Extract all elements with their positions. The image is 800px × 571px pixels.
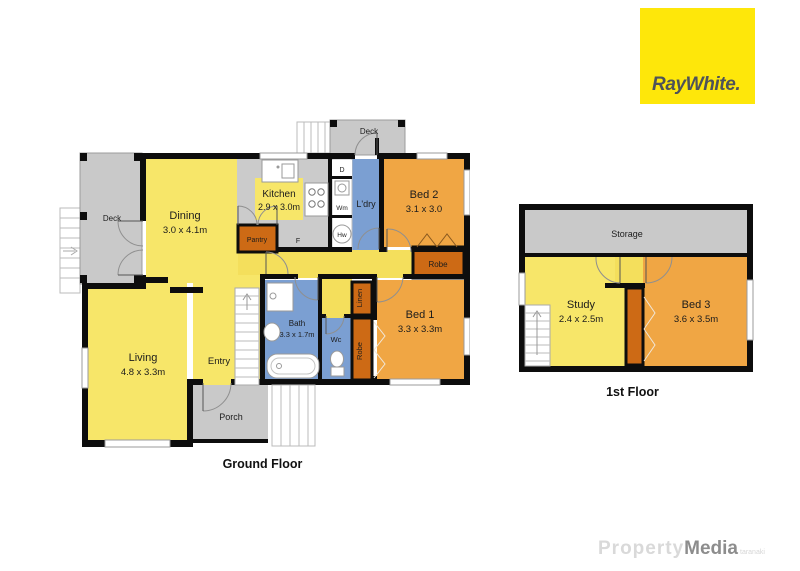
ground-floor-caption: Ground Floor <box>55 457 470 471</box>
living-dims: 4.8 x 3.3m <box>121 367 165 378</box>
robe-divider-closet <box>626 288 643 365</box>
bed1-label: Bed 1 <box>406 309 435 321</box>
bed2-label: Bed 2 <box>410 189 439 201</box>
floorplan-page: RayWhite. <box>0 0 800 571</box>
bed2-dims: 3.1 x 3.0 <box>406 204 442 215</box>
dining-label: Dining <box>169 210 200 222</box>
hall-pocket <box>322 278 352 318</box>
bed1-dims: 3.3 x 3.3m <box>398 324 442 335</box>
raywhite-logo-text: RayWhite. <box>652 74 740 96</box>
ground-floor-plan: Deck Deck Dining 3.0 x 4.1m Kitchen 2.9 … <box>55 108 470 453</box>
hot-water-label: Hw <box>337 232 347 239</box>
linen-label: Linen <box>355 289 364 307</box>
porch-label: Porch <box>219 412 243 422</box>
exterior-stairs-left-icon <box>60 208 80 293</box>
entry-label: Entry <box>208 356 230 367</box>
washing-machine-label: Wm <box>336 205 348 212</box>
pantry-label: Pantry <box>247 237 268 244</box>
shower-icon <box>267 283 293 311</box>
bed2-room <box>384 159 464 247</box>
exterior-steps-bottom-icon <box>272 385 315 446</box>
wc-label: Wc <box>331 335 342 344</box>
study-label: Study <box>567 299 596 311</box>
fridge-label: F <box>296 238 300 245</box>
kitchen-dims: 2.9 x 3.0m <box>258 202 300 212</box>
dishwasher-label: D <box>339 167 344 174</box>
bath-dims: 3.3 x 1.7m <box>279 330 314 339</box>
watermark-taranaki: taranaki <box>740 549 765 556</box>
watermark-media: Media <box>684 538 738 559</box>
bathtub-icon <box>267 354 319 378</box>
deck-left-label: Deck <box>103 214 122 223</box>
watermark-property: Property <box>598 538 684 559</box>
kitchen-sink-icon <box>262 160 298 182</box>
robe-bed1-label: Robe <box>355 342 364 360</box>
interior-stairs-icon <box>235 288 259 385</box>
raywhite-logo: RayWhite. <box>640 8 755 104</box>
washing-machine-icon <box>335 181 349 195</box>
basin-icon <box>264 323 280 341</box>
first-floor-caption: 1st Floor <box>505 385 760 399</box>
exterior-stairs-top-icon <box>297 122 330 153</box>
property-media-watermark: PropertyMediataranaki <box>598 538 765 560</box>
dining-dims: 3.0 x 4.1m <box>163 225 207 236</box>
living-label: Living <box>129 352 158 364</box>
bath-label: Bath <box>289 319 305 328</box>
bed3-label: Bed 3 <box>682 299 711 311</box>
kitchen-label: Kitchen <box>262 189 295 200</box>
laundry-label: L'dry <box>356 199 376 209</box>
bed3-dims: 3.6 x 3.5m <box>674 314 718 325</box>
study-dims: 2.4 x 2.5m <box>559 314 603 325</box>
stove-icon <box>305 183 328 216</box>
storage-label: Storage <box>611 229 643 239</box>
first-floor-plan: Storage Study 2.4 x 2.5m Bed 3 3.6 x 3.5… <box>505 195 760 380</box>
stairs-first-icon <box>525 305 550 366</box>
deck-top-label: Deck <box>360 127 379 136</box>
toilet-icon <box>331 351 345 376</box>
deck-top <box>330 120 405 155</box>
robe-bed2-label: Robe <box>428 260 448 269</box>
bed3-room <box>643 257 748 366</box>
